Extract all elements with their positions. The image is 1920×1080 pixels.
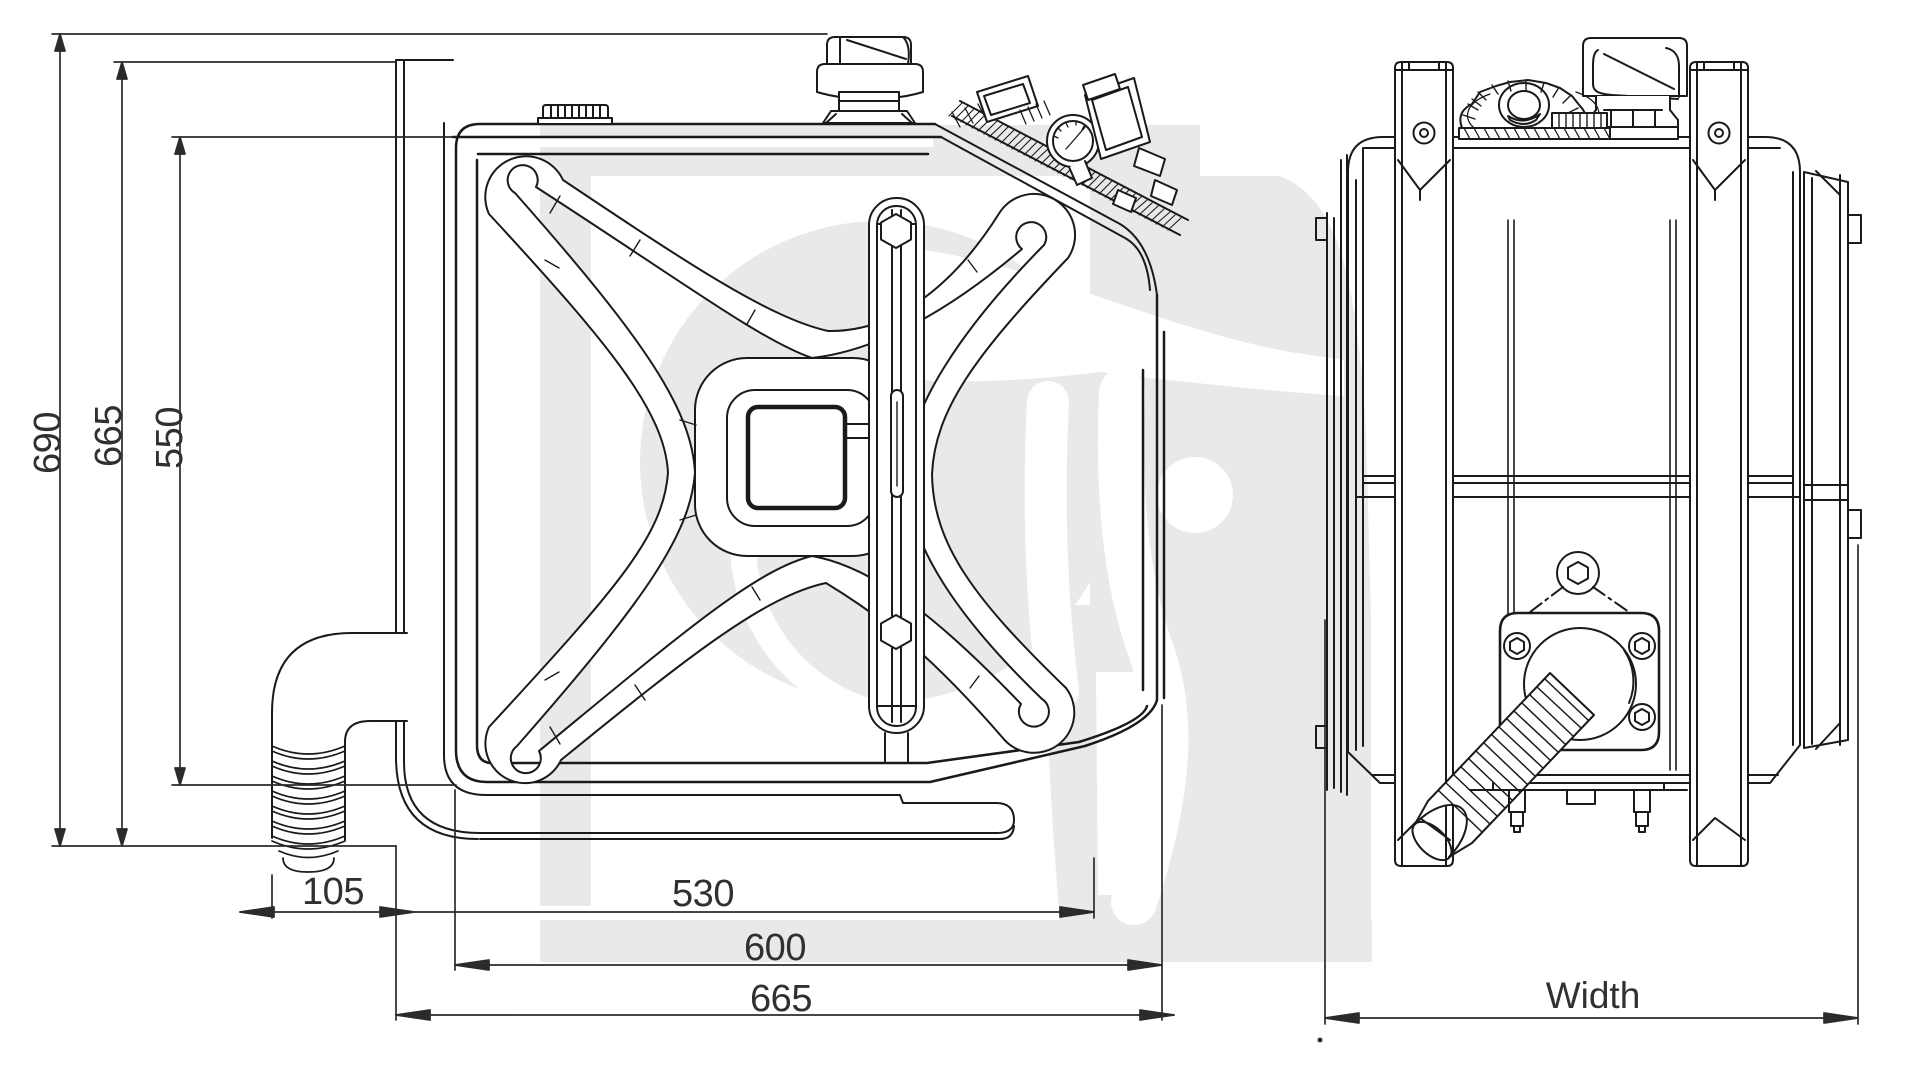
svg-text:105: 105	[302, 871, 364, 913]
svg-text:665: 665	[750, 978, 812, 1020]
svg-text:690: 690	[27, 412, 69, 474]
svg-text:Width: Width	[1546, 975, 1641, 1016]
svg-text:550: 550	[149, 407, 191, 469]
svg-text:665: 665	[88, 405, 130, 467]
svg-text:600: 600	[744, 927, 806, 969]
svg-text:530: 530	[672, 873, 734, 915]
